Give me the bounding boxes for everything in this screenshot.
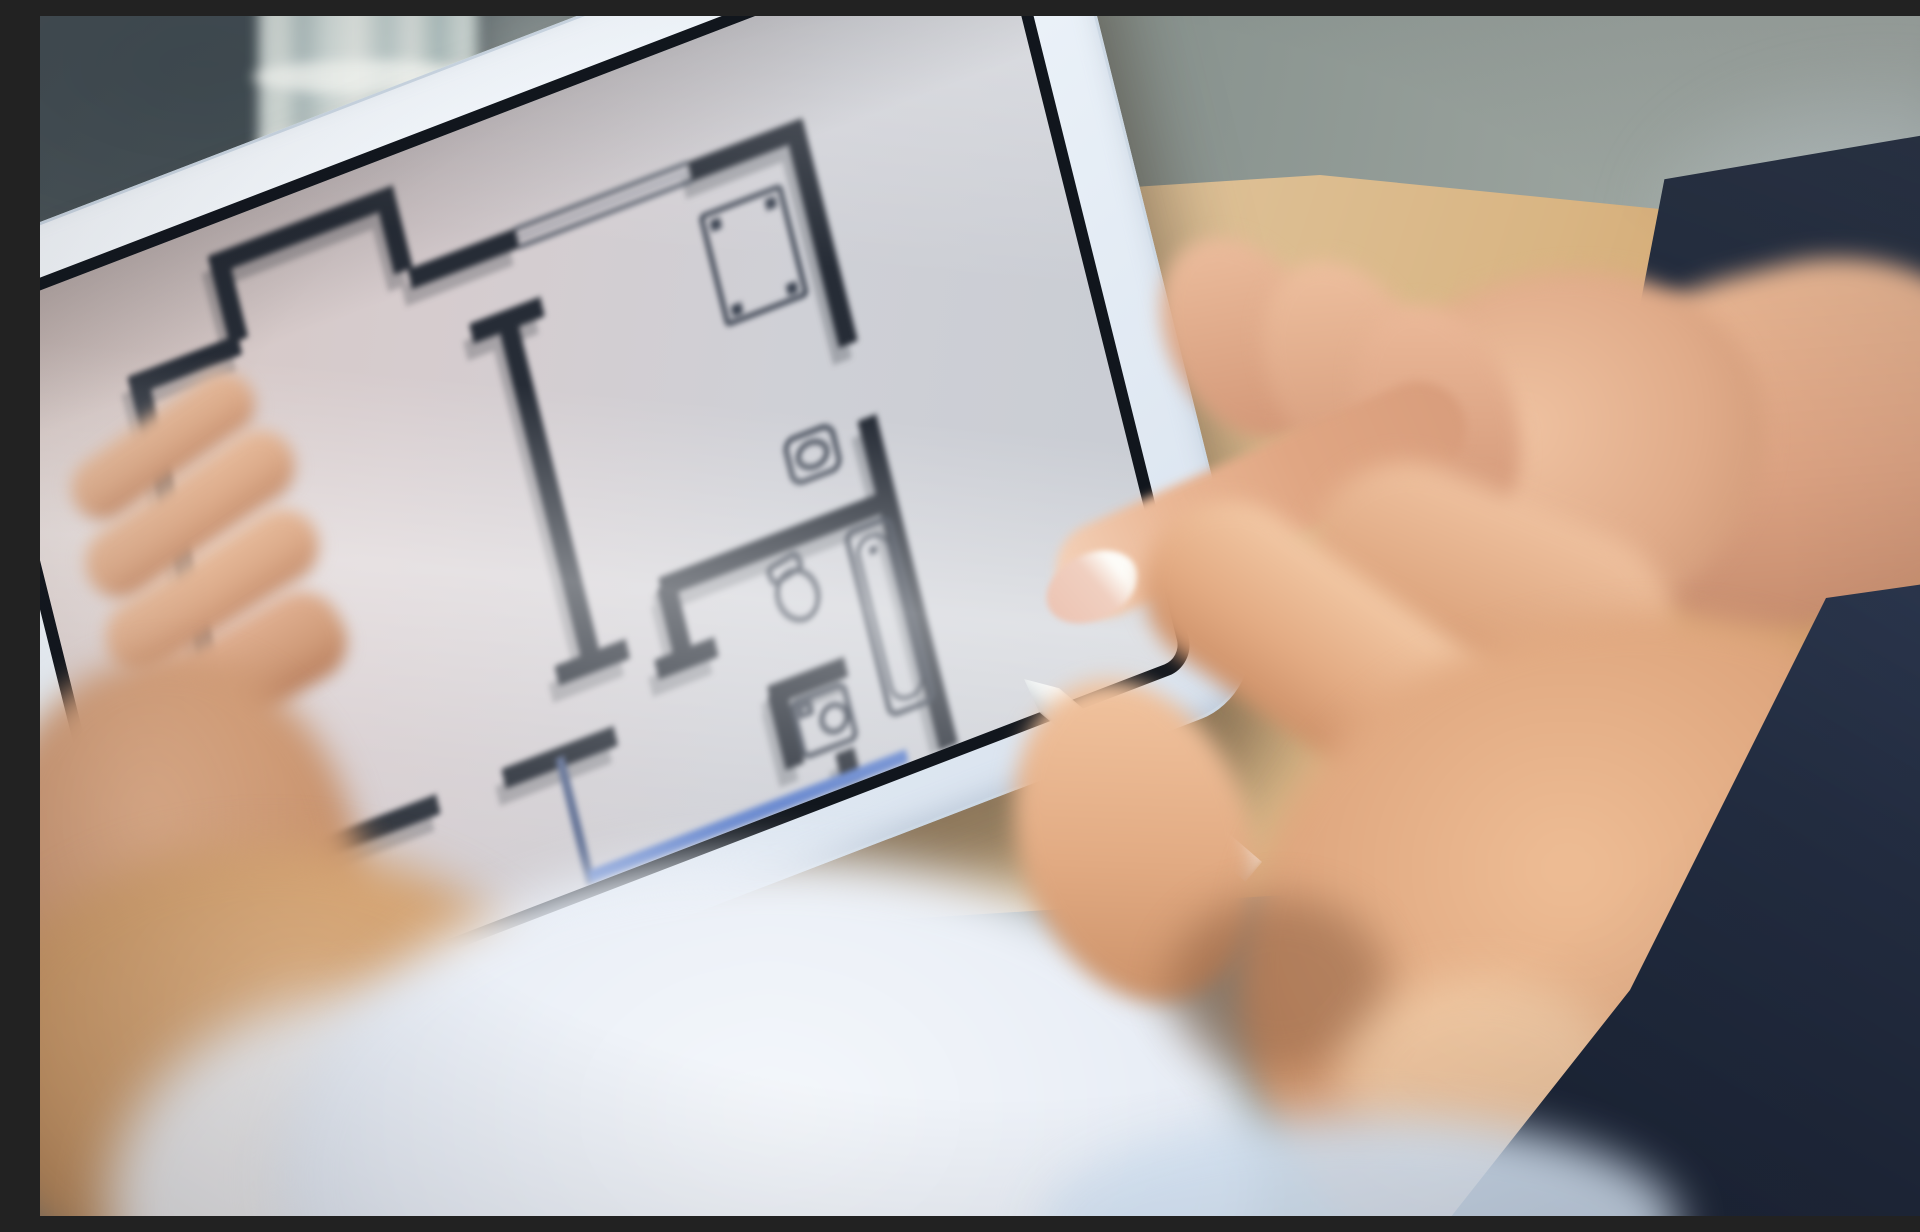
- scene-photo: [40, 16, 1920, 1216]
